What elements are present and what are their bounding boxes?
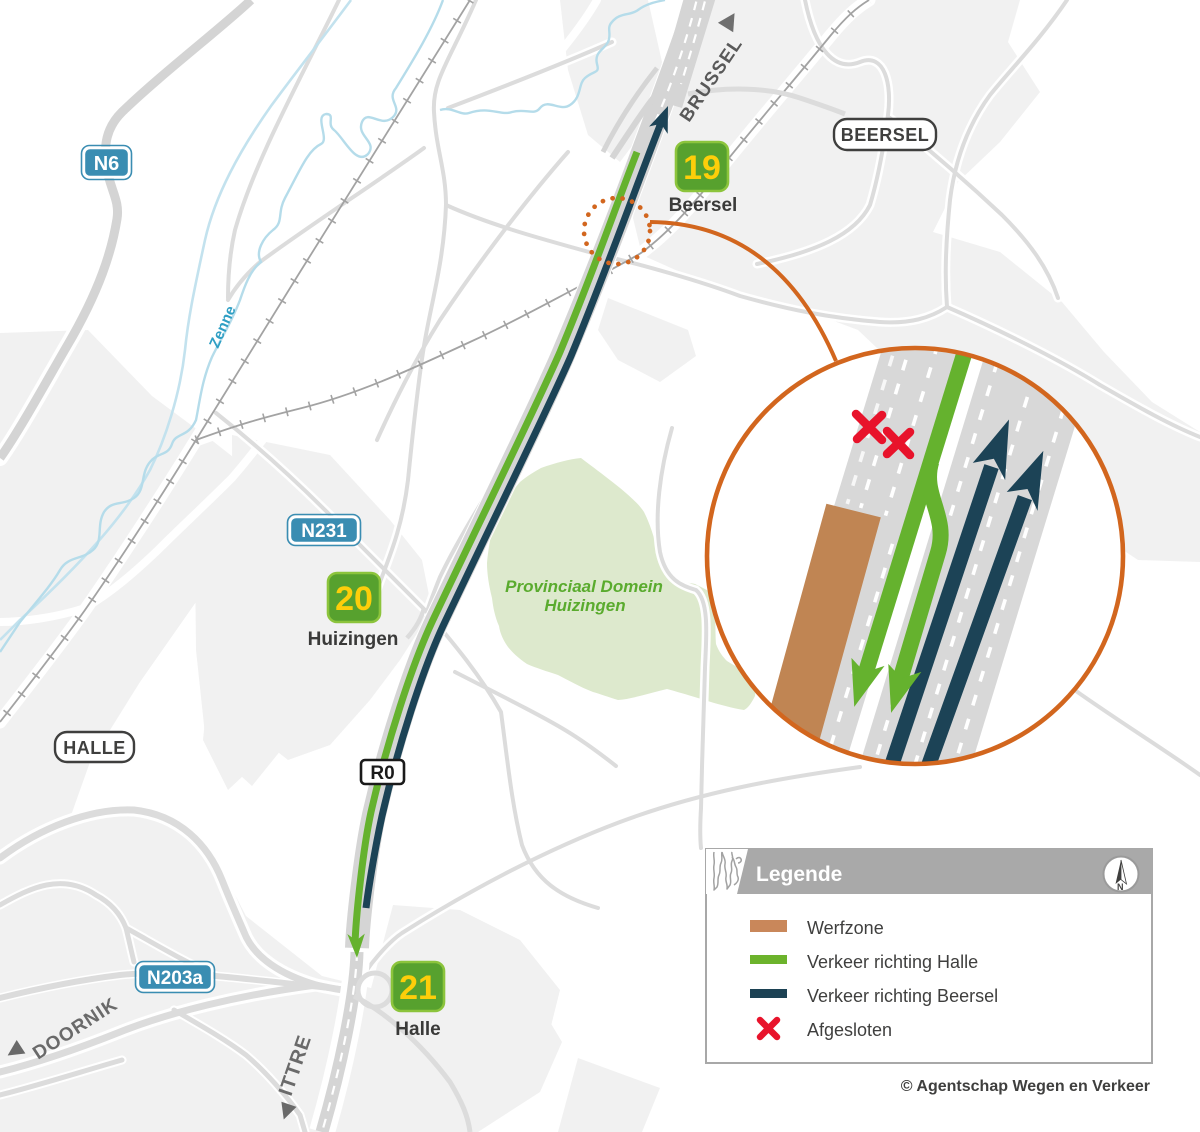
svg-text:N: N (1117, 882, 1124, 892)
svg-text:N203a: N203a (147, 968, 203, 989)
svg-text:19: 19 (683, 149, 721, 187)
svg-text:Legende: Legende (756, 863, 842, 886)
svg-text:Huizingen: Huizingen (308, 629, 399, 650)
svg-text:21: 21 (399, 969, 437, 1007)
svg-text:BEERSEL: BEERSEL (841, 125, 930, 145)
svg-text:20: 20 (335, 580, 373, 618)
svg-text:Verkeer richting Beersel: Verkeer richting Beersel (807, 986, 998, 1006)
svg-text:N6: N6 (94, 153, 120, 175)
svg-text:HALLE: HALLE (63, 738, 126, 758)
svg-text:Verkeer richting Halle: Verkeer richting Halle (807, 952, 978, 972)
svg-text:Afgesloten: Afgesloten (807, 1020, 892, 1040)
svg-text:Werfzone: Werfzone (807, 918, 884, 938)
svg-text:Halle: Halle (395, 1019, 440, 1040)
svg-text:Beersel: Beersel (669, 195, 738, 216)
svg-text:R0: R0 (370, 763, 394, 784)
svg-text:N231: N231 (301, 521, 347, 542)
svg-text:Provinciaal Domein: Provinciaal Domein (505, 577, 663, 596)
svg-text:© Agentschap Wegen en Verkeer: © Agentschap Wegen en Verkeer (901, 1078, 1150, 1095)
svg-text:Huizingen: Huizingen (544, 596, 625, 615)
